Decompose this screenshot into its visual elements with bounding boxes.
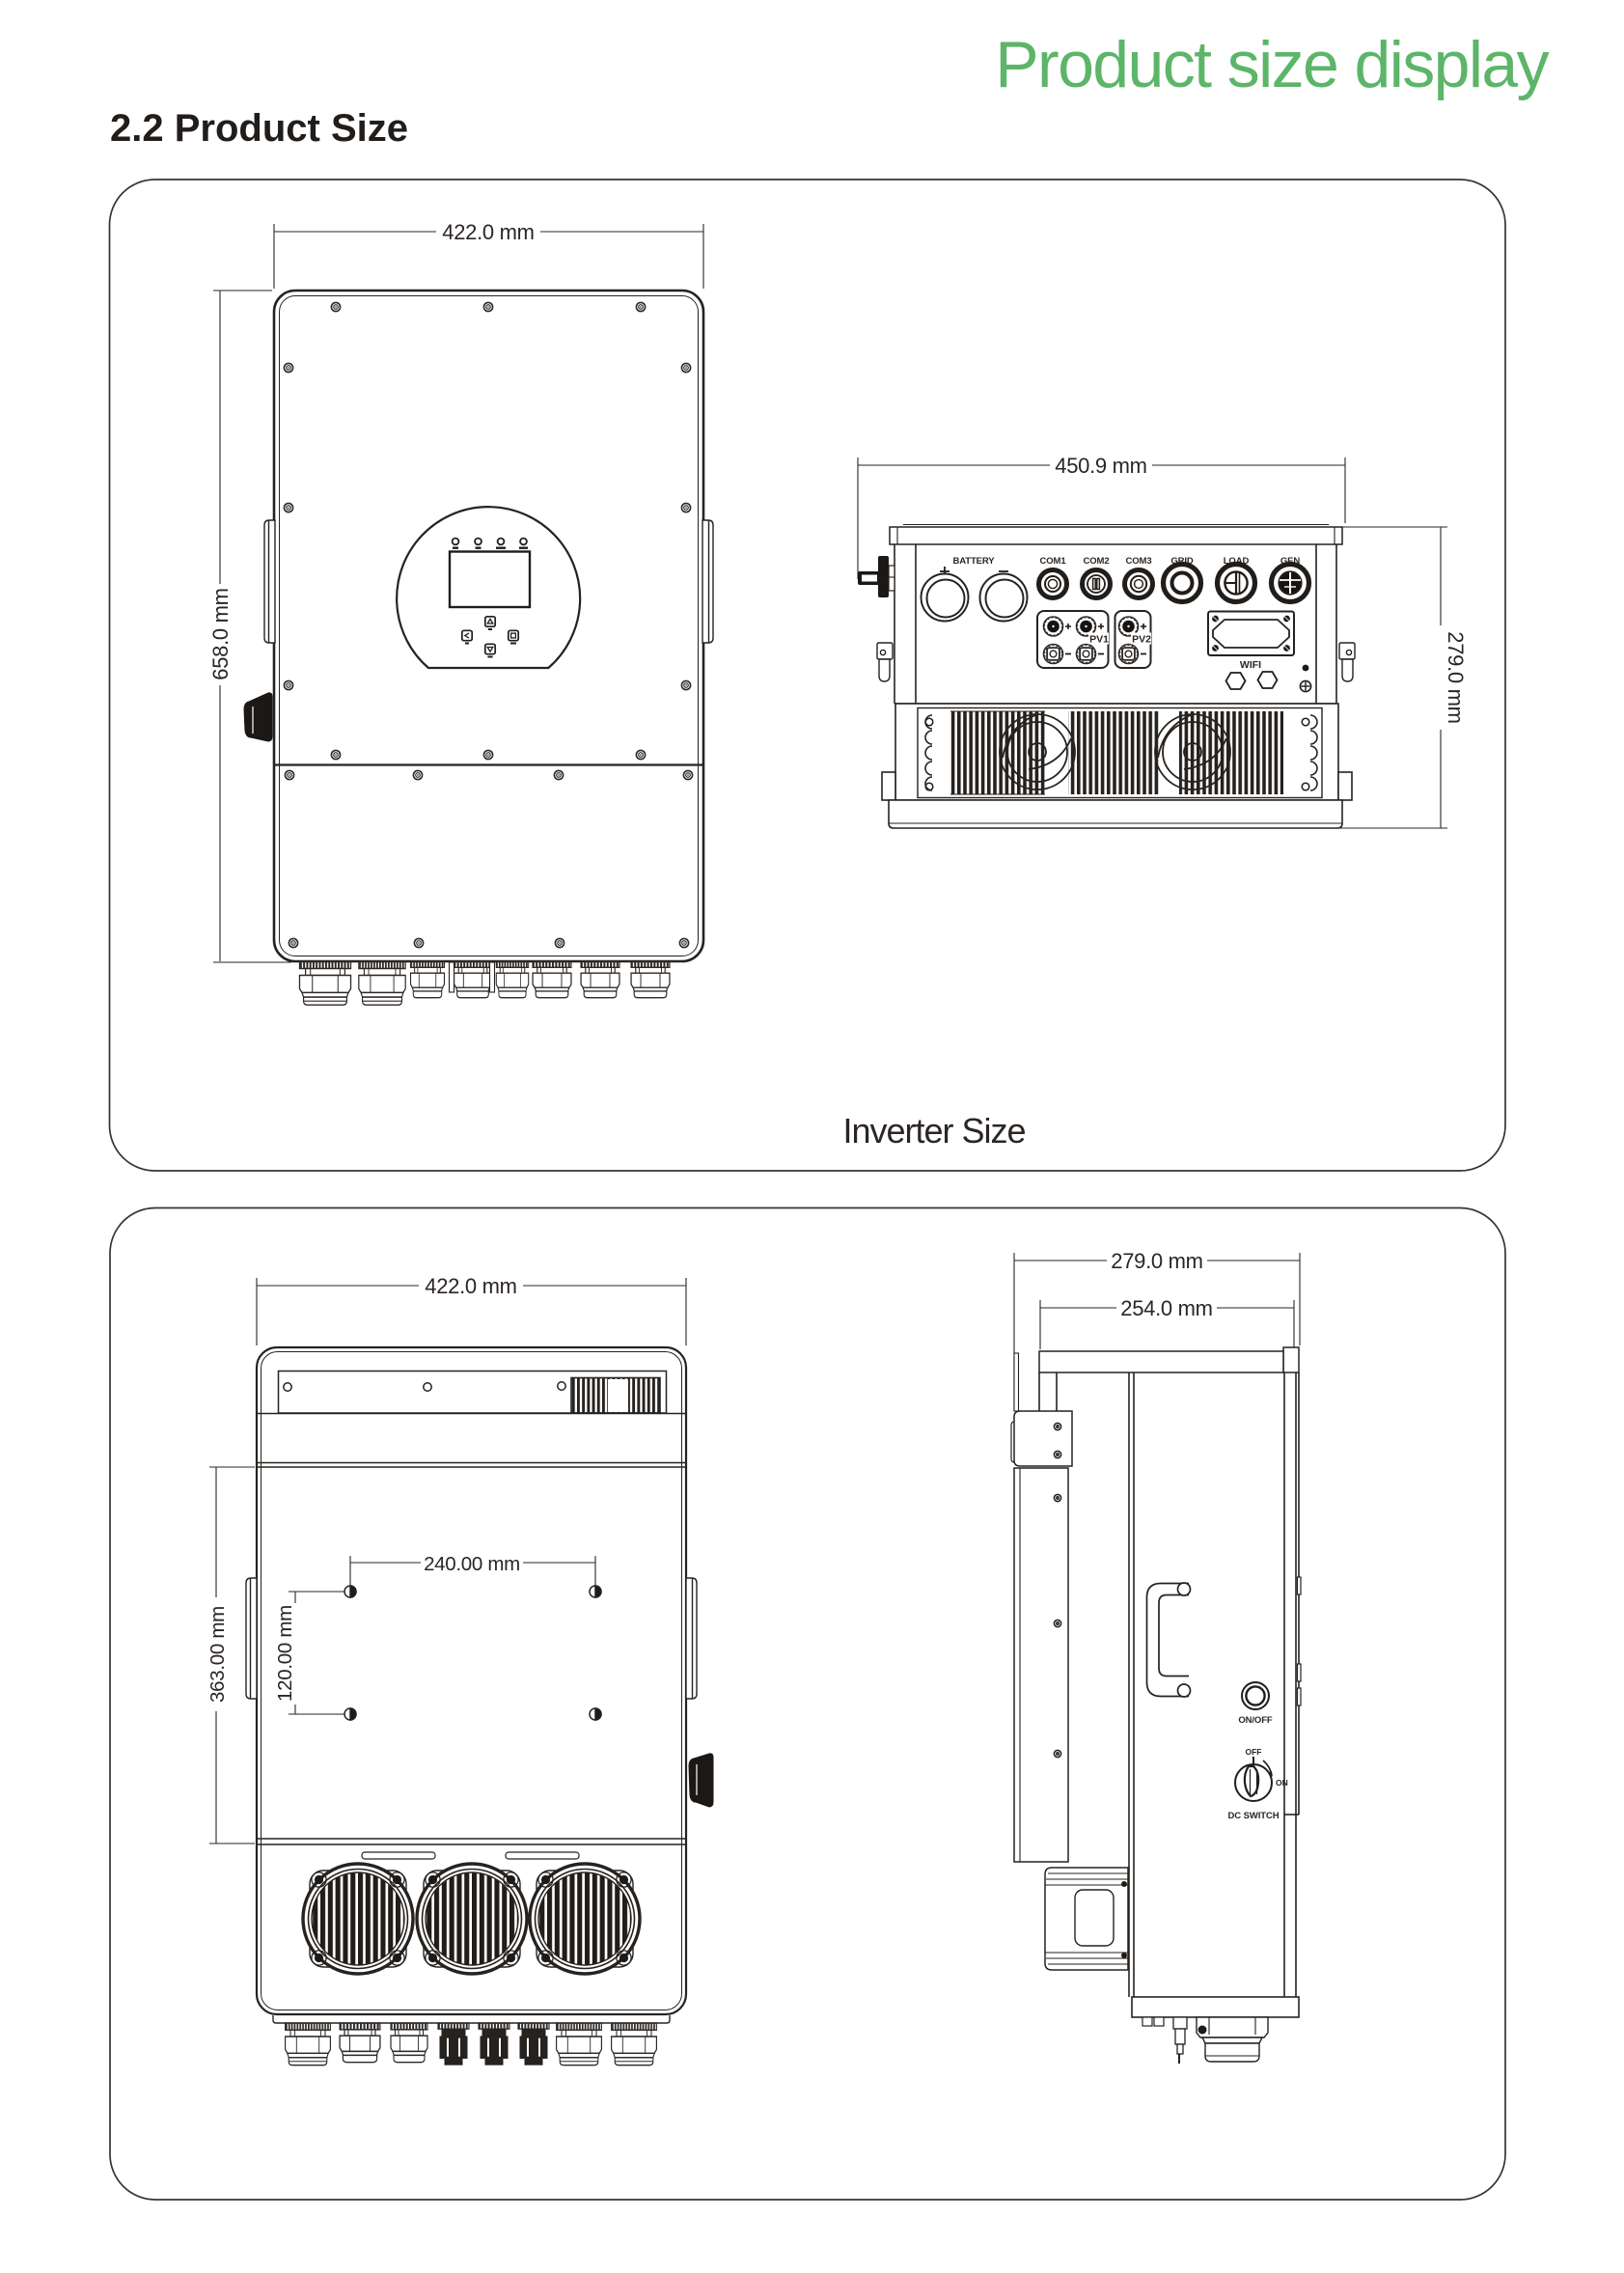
- svg-text:PV2: PV2: [1132, 634, 1151, 646]
- svg-text:658.0 mm: 658.0 mm: [208, 588, 233, 679]
- svg-text:120.00 mm: 120.00 mm: [274, 1605, 296, 1702]
- svg-text:WIFI: WIFI: [1240, 659, 1261, 671]
- svg-text:OFF: OFF: [1246, 1747, 1262, 1757]
- svg-text:422.0 mm: 422.0 mm: [425, 1274, 516, 1298]
- svg-text:2.2 Product Size: 2.2 Product Size: [110, 107, 408, 150]
- svg-text:COM2: COM2: [1083, 556, 1109, 567]
- svg-text:DC SWITCH: DC SWITCH: [1228, 1811, 1280, 1821]
- svg-text:422.0 mm: 422.0 mm: [442, 220, 534, 244]
- svg-text:279.0 mm: 279.0 mm: [1111, 1249, 1202, 1273]
- svg-text:279.0 mm: 279.0 mm: [1444, 631, 1468, 723]
- svg-text:Product size display: Product size display: [995, 28, 1549, 101]
- svg-text:ON/OFF: ON/OFF: [1238, 1715, 1273, 1726]
- svg-text:PV1: PV1: [1089, 634, 1109, 646]
- svg-text:COM1: COM1: [1039, 556, 1066, 567]
- svg-text:ON: ON: [1276, 1778, 1288, 1788]
- svg-text:COM3: COM3: [1125, 556, 1151, 567]
- svg-text:254.0 mm: 254.0 mm: [1120, 1296, 1212, 1320]
- svg-text:450.9 mm: 450.9 mm: [1055, 454, 1146, 478]
- svg-text:BATTERY: BATTERY: [952, 556, 995, 567]
- svg-text:363.00 mm: 363.00 mm: [206, 1606, 229, 1703]
- svg-text:Inverter Size: Inverter Size: [842, 1111, 1025, 1150]
- svg-text:240.00 mm: 240.00 mm: [424, 1553, 520, 1575]
